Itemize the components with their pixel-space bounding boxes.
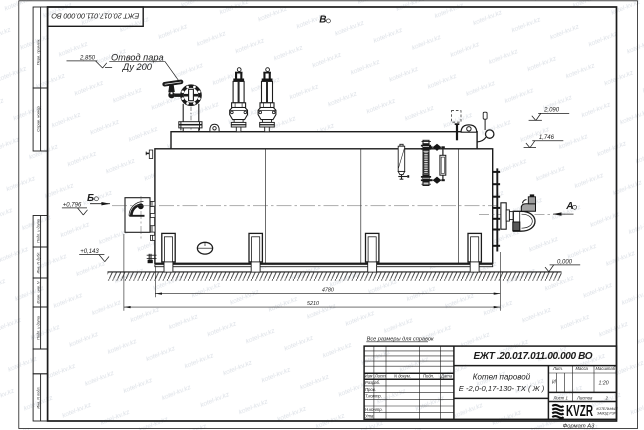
svg-text:Подп.: Подп. [423,374,434,379]
svg-text:И: И [552,380,556,386]
svg-text:Утв.: Утв. [365,413,375,418]
svg-text:Пров.: Пров. [365,387,376,392]
svg-text:Лист: Лист [374,374,386,379]
svg-text:КОТЕЛЬНЫЙ: КОТЕЛЬНЫЙ [596,407,618,411]
svg-text:Т.контр.: Т.контр. [365,394,382,399]
svg-text:1:20: 1:20 [599,381,609,387]
svg-text:Котел паровой: Котел паровой [473,373,531,382]
svg-text:Взам. инв. N: Взам. инв. N [37,281,41,303]
svg-text:Инв. N подл.: Инв. N подл. [37,386,41,408]
svg-text:Дата: Дата [440,374,453,379]
svg-text:Масса: Масса [576,366,589,371]
svg-text:2,090: 2,090 [543,108,560,114]
svg-text:Масштаб: Масштаб [596,366,616,371]
svg-text:5210: 5210 [307,301,319,307]
svg-text:1,746: 1,746 [539,135,555,141]
svg-text:4780: 4780 [322,287,334,293]
svg-text:N докум.: N докум. [394,374,411,379]
svg-text:Лист 1: Лист 1 [553,395,568,400]
svg-text:ЕЖТ 20.017.011.00.000 ВО: ЕЖТ 20.017.011.00.000 ВО [51,12,139,21]
svg-text:Инв. N дубл.: Инв. N дубл. [37,252,41,274]
svg-text:Подп. и дата: Подп. и дата [37,219,41,243]
svg-text:Формат А3: Формат А3 [563,423,595,429]
svg-text:В: В [319,15,326,26]
svg-text:Изм: Изм [365,374,373,379]
svg-text:Подп. и дата: Подп. и дата [37,316,41,340]
svg-text:Разраб.: Разраб. [365,380,380,385]
svg-text:ЗАВОД РЗР: ЗАВОД РЗР [597,412,617,416]
svg-text:Отвод пара: Отвод пара [111,52,164,62]
svg-text:А: А [565,201,573,212]
svg-text:Перв. примен.: Перв. примен. [36,39,41,66]
svg-text:ЕЖТ .20.017.011.00.000 ВО: ЕЖТ .20.017.011.00.000 ВО [474,351,593,362]
svg-text:Б: Б [87,193,94,204]
svg-text:Н.контр.: Н.контр. [365,407,383,412]
svg-text:Е -2,0-0,17-130- ТХ ( Ж ): Е -2,0-0,17-130- ТХ ( Ж ) [459,384,545,393]
svg-text:Справ. номер: Справ. номер [36,105,41,131]
svg-text:Лит.: Лит. [552,366,563,371]
svg-text:Листов: Листов [576,395,593,400]
svg-text:Ду 200: Ду 200 [122,62,153,72]
svg-text:KVZR: KVZR [566,403,593,420]
